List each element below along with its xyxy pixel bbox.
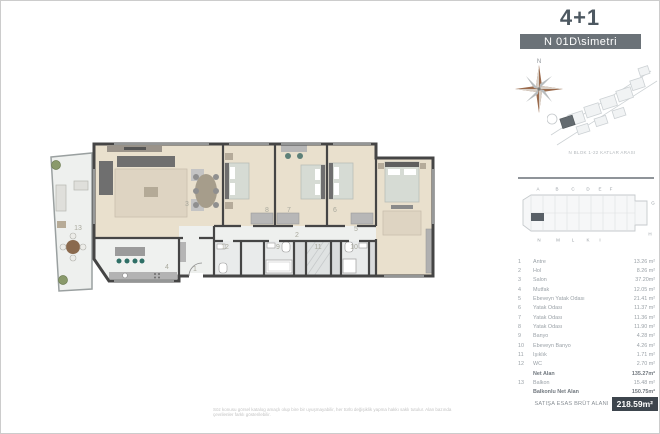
legend-row-number: 13 <box>518 380 528 386</box>
legend-row-label: Yatak Odası <box>528 324 634 330</box>
legend-row-value: 8.26 m² <box>637 268 655 274</box>
dining-chair <box>193 188 199 194</box>
dining-chair <box>213 174 219 180</box>
legend-row-label: Net Alan <box>528 371 632 377</box>
legend-row-value: 12.05 m² <box>634 287 655 293</box>
legend-row-value: 150.75m² <box>632 389 655 395</box>
legend-row-number: 11 <box>518 352 528 358</box>
legend-row-number: 10 <box>518 343 528 349</box>
headboard <box>321 165 325 199</box>
keyplan-letter: G <box>651 201 655 206</box>
stool <box>125 259 130 264</box>
room-number-7: 7 <box>287 207 291 214</box>
keyplan-letter: C <box>571 187 574 192</box>
room-number-9: 9 <box>276 244 280 251</box>
pillow <box>334 183 339 195</box>
nightstand <box>378 163 384 169</box>
legend-row-number: 4 <box>518 287 528 293</box>
legend-row-number: 9 <box>518 333 528 339</box>
side-table <box>57 221 66 228</box>
sidebar-divider <box>518 177 654 179</box>
kitchen-island <box>115 247 145 256</box>
pillow <box>230 183 235 195</box>
pillow <box>334 167 339 179</box>
desk <box>281 145 307 152</box>
door-gap <box>189 273 203 279</box>
legend-row-label: Hol <box>528 268 637 274</box>
legend-row-number: 1 <box>518 259 528 265</box>
legend-row-label: Balkon <box>528 380 634 386</box>
legend-row: 9Banyo4.28 m² <box>518 332 655 341</box>
siteplan-illustration <box>547 57 659 149</box>
desk-chair <box>285 153 291 159</box>
headboard <box>385 162 419 167</box>
room-number-1: 1 <box>193 266 197 273</box>
legend-row-label: Salon <box>528 277 635 283</box>
pillow <box>315 169 320 180</box>
cooktop <box>158 273 160 275</box>
room-area-legend: 1Antre13.26 m²2Hol8.26 m²3Salon37.20m²4M… <box>518 257 655 397</box>
legend-rows: 1Antre13.26 m²2Hol8.26 m²3Salon37.20m²4M… <box>518 257 655 397</box>
outdoor-sofa <box>56 185 66 211</box>
floor-plan-drawing: 1 2 3 4 5 6 7 8 9 10 11 12 13 <box>29 129 469 301</box>
shoe-cabinet <box>180 242 186 262</box>
floor-plan-page: 1 2 3 4 5 6 7 8 9 10 11 12 13 Söz konusu… <box>0 0 660 434</box>
stool <box>133 259 138 264</box>
master-rug <box>383 211 421 235</box>
sink <box>267 243 275 248</box>
legend-row-value: 21.41 m² <box>634 296 655 302</box>
legend-row-value: 11.90 m² <box>634 324 655 330</box>
nightstand <box>225 202 233 209</box>
gross-area-footer: SATIŞA ESAS BRÜT ALANI 218.59m² <box>506 397 658 411</box>
coffee-table <box>144 187 158 197</box>
stool <box>117 259 122 264</box>
gross-area-label: SATIŞA ESAS BRÜT ALANI <box>534 401 608 407</box>
room-number-5: 5 <box>354 226 358 233</box>
outdoor-chair <box>70 233 76 239</box>
legend-row-label: WC <box>528 361 637 367</box>
legend-row: 13Balkon15.48 m² <box>518 378 655 387</box>
keyplan-letter: H <box>648 232 651 237</box>
keyplan-letter: F <box>610 187 613 192</box>
legend-row: Balkonlu Net Alan150.75m² <box>518 388 655 397</box>
legend-row: 8Yatak Odası11.90 m² <box>518 322 655 331</box>
sink <box>123 273 128 278</box>
outdoor-chair <box>60 244 66 250</box>
legend-row: 2Hol8.26 m² <box>518 266 655 275</box>
legend-row-value: 1.71 m² <box>637 352 655 358</box>
apartment-type-title: 4+1 <box>519 5 641 31</box>
outdoor-chair <box>70 255 76 261</box>
pillow <box>404 169 416 175</box>
legend-row: 6Yatak Odası11.37 m² <box>518 304 655 313</box>
shaft <box>331 241 341 276</box>
keyplan-highlighted-unit <box>531 213 544 221</box>
shaft <box>294 241 306 276</box>
nightstand <box>225 153 233 160</box>
plant <box>52 161 61 170</box>
headboard <box>225 163 229 199</box>
plant <box>59 276 68 285</box>
legend-row-label: Ebeveyn Banyo <box>528 343 637 349</box>
legend-row-value: 37.20m² <box>635 277 655 283</box>
keyplan-letter: K <box>586 238 589 243</box>
legend-row-number: 7 <box>518 315 528 321</box>
keyplan-letter: E <box>598 187 601 192</box>
legend-row-value: 2.70 m² <box>637 361 655 367</box>
outdoor-sofa <box>74 181 88 190</box>
sofa <box>117 156 175 167</box>
room-number-2: 2 <box>295 232 299 239</box>
kitchen-counter <box>109 272 177 279</box>
legend-row-value: 15.48 m² <box>634 380 655 386</box>
legend-row-label: Işıklık <box>528 352 637 358</box>
legend-row-value: 11.37 m² <box>634 305 655 311</box>
dining-chair <box>213 202 219 208</box>
shower <box>343 259 356 273</box>
legend-row-value: 4.28 m² <box>637 333 655 339</box>
unit-code-bar: N 01D\simetri <box>520 34 641 49</box>
room-number-8: 8 <box>265 207 269 214</box>
legend-row-value: 13.26 m² <box>634 259 655 265</box>
keyplan-letter: I <box>599 238 600 243</box>
keyplan-letter: D <box>586 187 589 192</box>
legend-row: 11Işıklık1.71 m² <box>518 350 655 359</box>
legend-row-value: 135.27m² <box>632 371 655 377</box>
room-number-13: 13 <box>74 225 82 232</box>
gross-area-value-badge: 218.59m² <box>612 397 658 411</box>
nightstand <box>420 163 426 169</box>
tv <box>124 147 146 150</box>
legend-row-label: Yatak Odası <box>528 305 634 311</box>
legend-row: 5Ebeveyn Yatak Odası21.41 m² <box>518 294 655 303</box>
legend-row-label: Yatak Odası <box>528 315 634 321</box>
legend-row-label: Ebeveyn Yatak Odası <box>528 296 634 302</box>
compass-north-label: N <box>537 59 541 65</box>
legend-row-number: 5 <box>518 296 528 302</box>
legend-row-number: 12 <box>518 361 528 367</box>
toilet <box>219 263 227 273</box>
keyplan-letter: A <box>536 187 539 192</box>
keyplan-letter: L <box>572 238 575 243</box>
legend-row-label: Antre <box>528 259 634 265</box>
legend-row-number: 6 <box>518 305 528 311</box>
disclaimer-text: Söz konusu görsel katalog amaçlı olup bi… <box>213 408 459 418</box>
pillow <box>230 167 235 179</box>
legend-row-value: 4.26 m² <box>637 343 655 349</box>
cooktop <box>154 273 156 275</box>
legend-row: 10Ebeveyn Banyo4.26 m² <box>518 341 655 350</box>
cooktop <box>154 277 156 279</box>
legend-row-value: 11.36 m² <box>634 315 655 321</box>
legend-row-label: Banyo <box>528 333 637 339</box>
outdoor-chair <box>80 244 86 250</box>
keyplan-letter: B <box>555 187 558 192</box>
pillow <box>315 184 320 195</box>
keyplan-letter: M <box>556 238 560 243</box>
room-number-3: 3 <box>185 201 189 208</box>
chaise <box>99 161 113 195</box>
room-number-10: 10 <box>350 244 358 251</box>
master-bed <box>385 162 419 202</box>
headboard <box>329 163 333 199</box>
wardrobe <box>351 213 373 224</box>
room-number-4: 4 <box>165 264 169 271</box>
room-number-11: 11 <box>314 244 321 251</box>
wardrobe <box>426 229 432 273</box>
legend-row-label: Balkonlu Net Alan <box>528 389 632 395</box>
legend-row: 1Antre13.26 m² <box>518 257 655 266</box>
dining-chair <box>193 174 199 180</box>
dining-chair <box>193 202 199 208</box>
sink <box>359 243 367 248</box>
stool <box>140 259 145 264</box>
legend-row-number: 3 <box>518 277 528 283</box>
legend-row: 7Yatak Odası11.36 m² <box>518 313 655 322</box>
desk-chair <box>297 153 303 159</box>
toilet <box>282 242 290 252</box>
highlighted-block <box>560 115 575 129</box>
dining-chair <box>213 188 219 194</box>
keyplan-letter: N <box>537 238 540 243</box>
room-number-6: 6 <box>333 207 337 214</box>
legend-row: Net Alan135.27m² <box>518 369 655 378</box>
floor-keyplan: A B C D E F G H N M L K I <box>517 184 657 252</box>
wardrobe <box>251 213 273 224</box>
outdoor-table <box>66 240 80 254</box>
bench <box>391 205 413 209</box>
legend-row-number: 2 <box>518 268 528 274</box>
legend-row: 3Salon37.20m² <box>518 276 655 285</box>
legend-row: 12WC2.70 m² <box>518 360 655 369</box>
siteplan-caption: N BLOK 1-22 KATLAR ARASI <box>546 150 658 155</box>
legend-row: 4Mutfak12.05 m² <box>518 285 655 294</box>
legend-row-number: 8 <box>518 324 528 330</box>
legend-row-label: Mutfak <box>528 287 634 293</box>
wardrobe <box>277 213 299 224</box>
cooktop <box>158 277 160 279</box>
room-number-12: 12 <box>221 244 229 251</box>
pillow <box>388 169 400 175</box>
